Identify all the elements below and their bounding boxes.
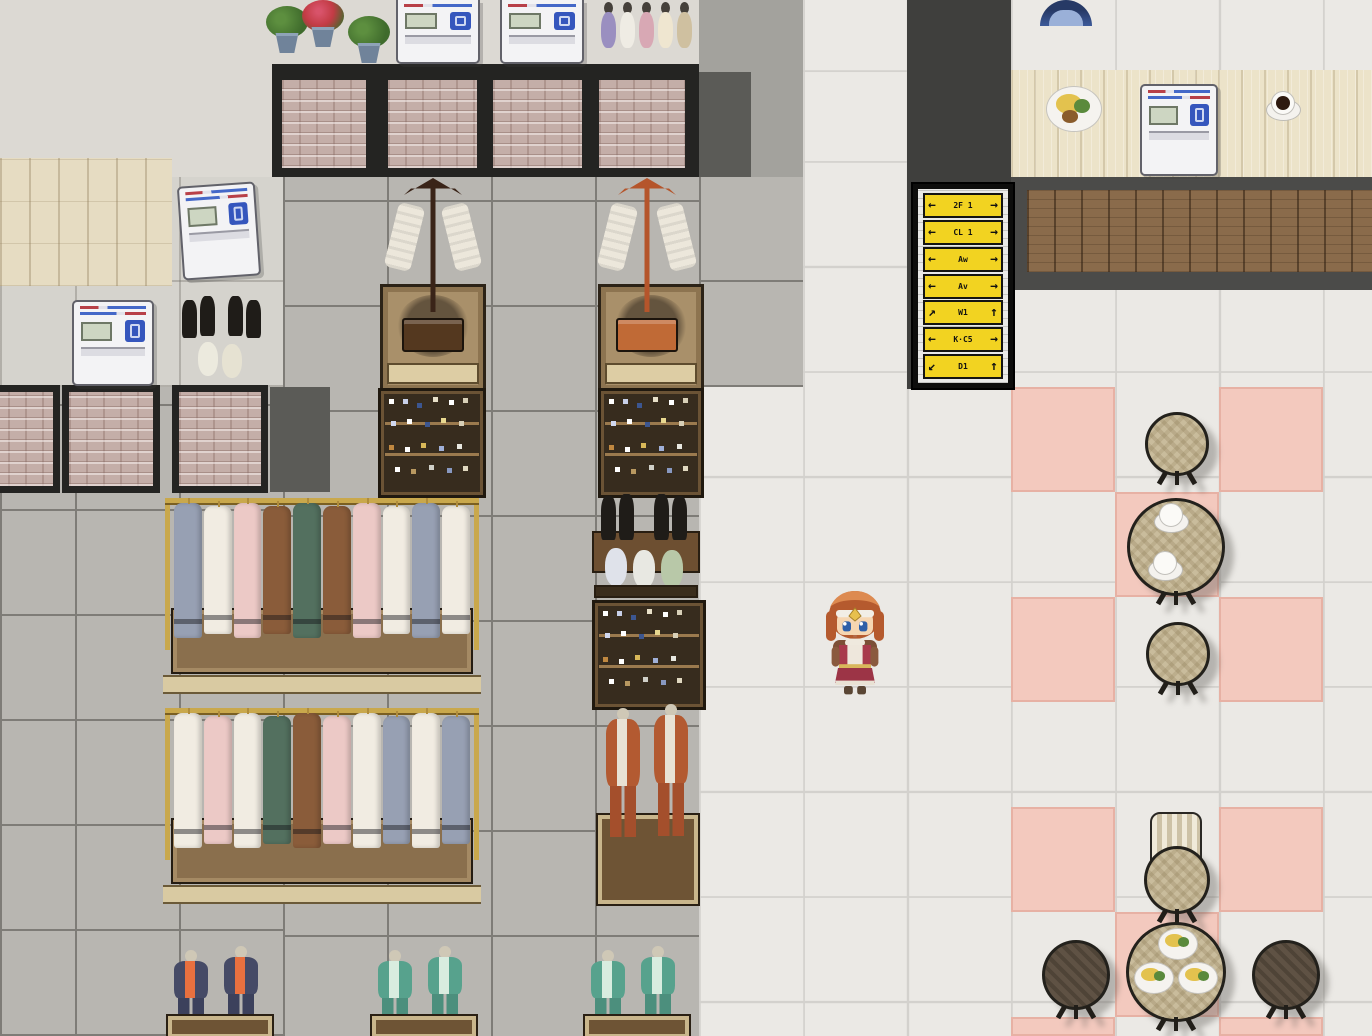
food-plate [1046,86,1102,132]
sign-row: ←Av→ [923,274,1003,299]
boot [228,296,243,336]
product-row [404,4,472,7]
shoes [609,399,693,487]
cup [1271,91,1295,115]
mannequin-torso [428,957,462,995]
floor-platform [370,1014,478,1036]
pink-tile [1219,807,1323,912]
eye-glint [859,622,863,626]
brick-face [0,392,53,486]
arrow-left-icon: ← [928,226,936,239]
bust-torso [601,12,616,48]
boot [246,300,261,338]
arrow-right-icon: → [990,253,998,266]
sneaker [633,550,655,587]
pot [356,43,382,63]
vending-machine-top-1[interactable] [396,0,480,64]
shelf-edge [594,585,698,598]
garment [353,713,381,848]
brick-face [179,392,261,486]
floor-platform [166,1014,274,1036]
player-boot [857,686,866,694]
table-legs [1263,1006,1309,1019]
rack-post [474,498,479,650]
product-row [1148,90,1210,93]
bust [638,2,655,52]
bust-torso [658,12,673,48]
brick-panel [493,80,582,168]
table-legs [1154,472,1200,485]
bust-torso [620,12,635,48]
sneaker [661,550,683,587]
skirt-trim [835,681,874,685]
flower-pot-red [302,0,344,47]
mannequin-pair-orange [596,702,700,902]
dark-wall-tile-b [751,72,803,177]
table-legs [1053,1006,1099,1019]
pot [310,27,336,47]
shoe-shelf [598,388,704,498]
sign-row: ←CL 1→ [923,220,1003,245]
sign-board: ←2F 1→ ←CL 1→ ←Aw→ ←Av→ ↗W1↑ ←K·C5→ ↙D1↑ [918,189,1008,383]
vending-display [405,13,437,29]
sign-row-label: K·C5 [953,335,972,344]
product-row [508,4,576,7]
sign-row-label: 2F 1 [953,201,972,210]
sneaker [605,548,627,585]
brick-face [69,392,153,486]
stand-seat [402,318,464,352]
garment [412,503,440,638]
brick-panel [599,80,685,168]
arrow-right-icon: → [990,226,998,239]
brick-panel [282,80,366,168]
floor-platform [583,1014,691,1036]
player-sprite[interactable] [818,586,892,696]
dark-wall-segment [270,387,330,492]
bust [657,2,674,52]
boot [182,300,197,338]
shoe-shelf [378,388,486,498]
mannequin-bust-row [600,2,696,58]
pink-tile [1011,597,1115,702]
table-legs [1153,1018,1199,1031]
boot-display [176,296,268,382]
garment [234,713,262,848]
corridor-tile [699,0,803,72]
food [1178,937,1189,947]
mannequin-torso [378,961,412,999]
pot [274,33,300,53]
sign-row-label: W1 [958,308,968,317]
mannequin-torso [606,719,640,786]
teacup [1152,500,1190,534]
garment [293,713,321,848]
vending-display [81,322,112,341]
cafe-table-dark [1042,940,1110,1010]
pink-tile [1011,1017,1115,1036]
product-row [80,306,146,309]
arrow-left-icon: ← [928,199,936,212]
jacket-stand-dark [385,178,481,352]
mannequin [648,704,694,868]
brick-panel [62,385,160,493]
bust [676,2,693,52]
table-legs [1153,592,1199,605]
cafe-counter-dark [1027,190,1372,272]
coffee-cup [1264,88,1302,122]
garment [174,503,202,638]
sign-row: ←Aw→ [923,247,1003,272]
product-row [80,312,146,315]
hanging-garment [440,202,482,273]
garment-row [174,713,470,853]
dispenser-slot [509,35,575,44]
garment-row [174,503,470,643]
boot [654,494,669,540]
vending-display [1149,106,1178,125]
garment [263,506,291,634]
mannequin [600,708,646,868]
bust-torso [677,12,692,48]
rack-post [165,708,170,860]
garment [442,506,470,634]
storefront-brick-band [272,64,699,177]
cafe-table-small [1145,412,1209,476]
jacket-stand-orange [598,178,696,352]
counter-kiosk-machine[interactable] [1140,84,1218,176]
garment [293,503,321,638]
mannequin-torso [224,957,258,995]
garment [323,506,351,634]
hanging-garment [383,202,425,273]
brick-panel [172,385,268,493]
table-legs [1155,682,1201,695]
cup [1159,503,1183,527]
boot [672,496,687,540]
sign-row: ←K·C5→ [923,327,1003,352]
shoes [389,399,475,487]
garment [174,713,202,848]
mannequin-torso [641,957,675,995]
vending-machine-left-1[interactable] [177,181,261,280]
food [1062,110,1079,123]
sign-row: ↗W1↑ [923,300,1003,325]
arrow-right-icon: → [990,280,998,293]
hanging-garment [596,202,638,273]
sign-row: ←2F 1→ [923,193,1003,218]
arrow-right-icon: → [990,333,998,346]
sign-row-label: Aw [958,255,968,264]
player-mouth [853,635,857,637]
vending-display [187,206,217,227]
cup [1153,551,1177,575]
food-plate [1134,962,1174,994]
boot-shelf-unit [592,494,700,598]
garment [204,716,232,844]
dispenser-slot [189,229,249,242]
brick-panel [388,80,477,168]
white-shoe [198,342,218,376]
pink-tile [1219,1017,1323,1036]
wood-floor-patch [0,158,172,286]
boot [619,494,634,540]
garment [383,506,411,634]
product-row [186,194,248,201]
coin-panel [554,12,575,30]
pink-tile [1011,387,1115,492]
game-viewport[interactable]: ←2F 1→ ←CL 1→ ←Aw→ ←Av→ ↗W1↑ ←K·C5→ ↙D1↑ [0,0,1372,1036]
pink-tile [1219,597,1323,702]
arrow-left-icon: ← [928,333,936,346]
wall-top-left [0,0,272,177]
garment [204,506,232,634]
cafe-table-dark [1252,940,1320,1010]
arrow-up-icon: ↑ [990,306,998,319]
brick-panel [0,385,60,493]
sign-row-label: Av [958,282,968,291]
garment [353,503,381,638]
garment [263,716,291,844]
clothing-rack [163,702,481,910]
mannequin-legs [610,786,636,837]
player-belt [839,664,871,668]
player-arm [832,647,840,667]
dispenser-slot [1149,131,1209,140]
shoes [603,611,695,699]
clothing-rack [163,492,481,700]
stand-pole [645,186,650,312]
coin-panel [125,320,145,342]
coin-panel [1190,104,1209,126]
food-plate [1158,928,1198,960]
rack-post [474,708,479,860]
player-arm [870,647,878,667]
mannequin-torso [174,961,208,999]
arrow-up-icon: ↑ [990,360,998,373]
food [1074,99,1090,113]
garment [442,716,470,844]
shoe-shelf [592,600,706,710]
rack-post [165,498,170,650]
teacup [1146,548,1184,582]
pink-tile [1011,807,1115,912]
bust-torso [639,12,654,48]
hair-lock [874,611,884,641]
coin-panel [228,202,249,225]
floor-guide-sign[interactable]: ←2F 1→ ←CL 1→ ←Aw→ ←Av→ ↗W1↑ ←K·C5→ ↙D1↑ [911,182,1015,390]
dispenser-slot [81,347,145,356]
flower-pot [348,16,390,63]
food [1154,971,1165,981]
vending-machine-top-2[interactable] [500,0,584,64]
mannequin-torso [591,961,625,999]
food [1198,971,1209,981]
boot [200,296,215,336]
bust [600,2,617,52]
garment [383,716,411,844]
cafe-table-small [1146,622,1210,686]
sign-row: ↙D1↑ [923,354,1003,379]
arrow-right-icon: → [990,199,998,212]
cafe-table-medium [1144,846,1210,914]
sign-row-label: D1 [958,362,968,371]
brick-panel-row-left [0,385,270,495]
vending-display [509,13,541,29]
dark-wall-tile-a [699,72,751,177]
arrow-diag-icon: ↙ [928,360,936,373]
player-boot [844,686,853,694]
dispenser-slot [405,35,471,44]
mannequin-torso [654,715,688,784]
arrow-left-icon: ← [928,253,936,266]
arrow-left-icon: ← [928,280,936,293]
product-row [1148,96,1210,99]
pink-tile [1219,387,1323,492]
hair-lock [826,611,836,641]
bust [619,2,636,52]
food-plate [1178,962,1218,994]
garment [412,713,440,848]
arrow-diag-icon: ↗ [928,306,936,319]
rack-floor-strip [163,885,481,904]
boot [601,496,616,540]
vending-machine-left-2[interactable] [72,300,154,386]
stand-pole [431,186,436,312]
coin-panel [450,12,471,30]
mannequin-legs [658,783,684,835]
white-shoe [222,344,242,378]
hanging-garment [655,202,697,273]
eye-glint [843,622,847,626]
garment [234,503,262,638]
stand-seat [616,318,678,352]
rack-floor-strip [163,675,481,694]
garment [323,716,351,844]
shop-floor-corner [699,177,803,387]
sign-row-label: CL 1 [953,228,972,237]
